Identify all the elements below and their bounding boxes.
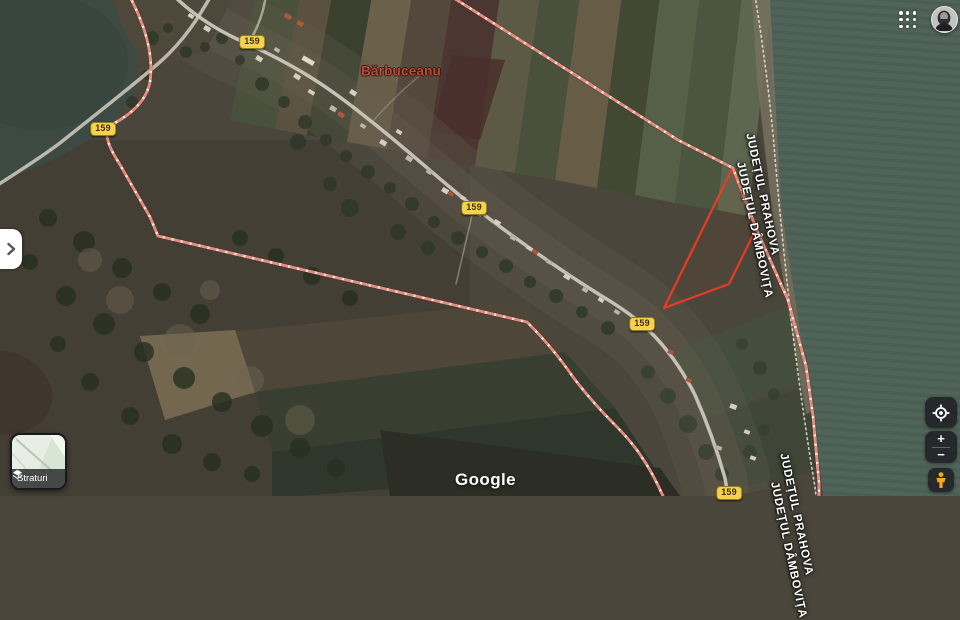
google-maps-app: { "map": { "place_label": "Bărbuceanu", … xyxy=(0,0,960,496)
zoom-control: + − xyxy=(925,431,957,463)
my-location-icon xyxy=(932,404,950,422)
route-shield-159: 159 xyxy=(461,201,487,215)
map-canvas[interactable] xyxy=(0,0,960,496)
layers-icon xyxy=(12,469,23,480)
side-panel-expand-button[interactable] xyxy=(0,229,22,269)
apps-grid-icon xyxy=(913,25,917,29)
google-apps-button[interactable] xyxy=(899,11,917,29)
layers-label-bar: Straturi xyxy=(12,469,65,488)
chevron-right-icon xyxy=(6,242,16,256)
route-shield-159: 159 xyxy=(90,122,116,136)
street-view-pegman-button[interactable] xyxy=(928,468,954,492)
apps-grid-icon xyxy=(906,11,910,15)
apps-grid-icon xyxy=(913,11,917,15)
apps-grid-icon xyxy=(906,25,910,29)
route-number: 159 xyxy=(634,318,650,328)
apps-grid-icon xyxy=(913,18,917,22)
avatar-photo-icon xyxy=(932,7,956,31)
satellite-imagery xyxy=(0,0,960,496)
apps-grid-icon xyxy=(899,11,903,15)
route-shield-159: 159 xyxy=(629,317,655,331)
route-shield-159: 159 xyxy=(239,35,265,49)
route-shield-159: 159 xyxy=(716,486,742,500)
route-number: 159 xyxy=(95,123,111,133)
apps-grid-icon xyxy=(899,18,903,22)
apps-grid-icon xyxy=(906,18,910,22)
my-location-button[interactable] xyxy=(925,397,957,428)
route-number: 159 xyxy=(244,36,260,46)
zoom-out-button[interactable]: − xyxy=(925,449,957,461)
account-avatar[interactable] xyxy=(931,6,958,33)
zoom-in-button[interactable]: + xyxy=(925,433,957,445)
pegman-icon xyxy=(935,472,947,489)
layers-button[interactable]: Straturi xyxy=(10,433,67,490)
place-label-barbuceanu[interactable]: Bărbuceanu xyxy=(361,64,441,79)
apps-grid-icon xyxy=(899,25,903,29)
google-logo[interactable]: Google xyxy=(455,470,516,490)
route-number: 159 xyxy=(466,202,482,212)
